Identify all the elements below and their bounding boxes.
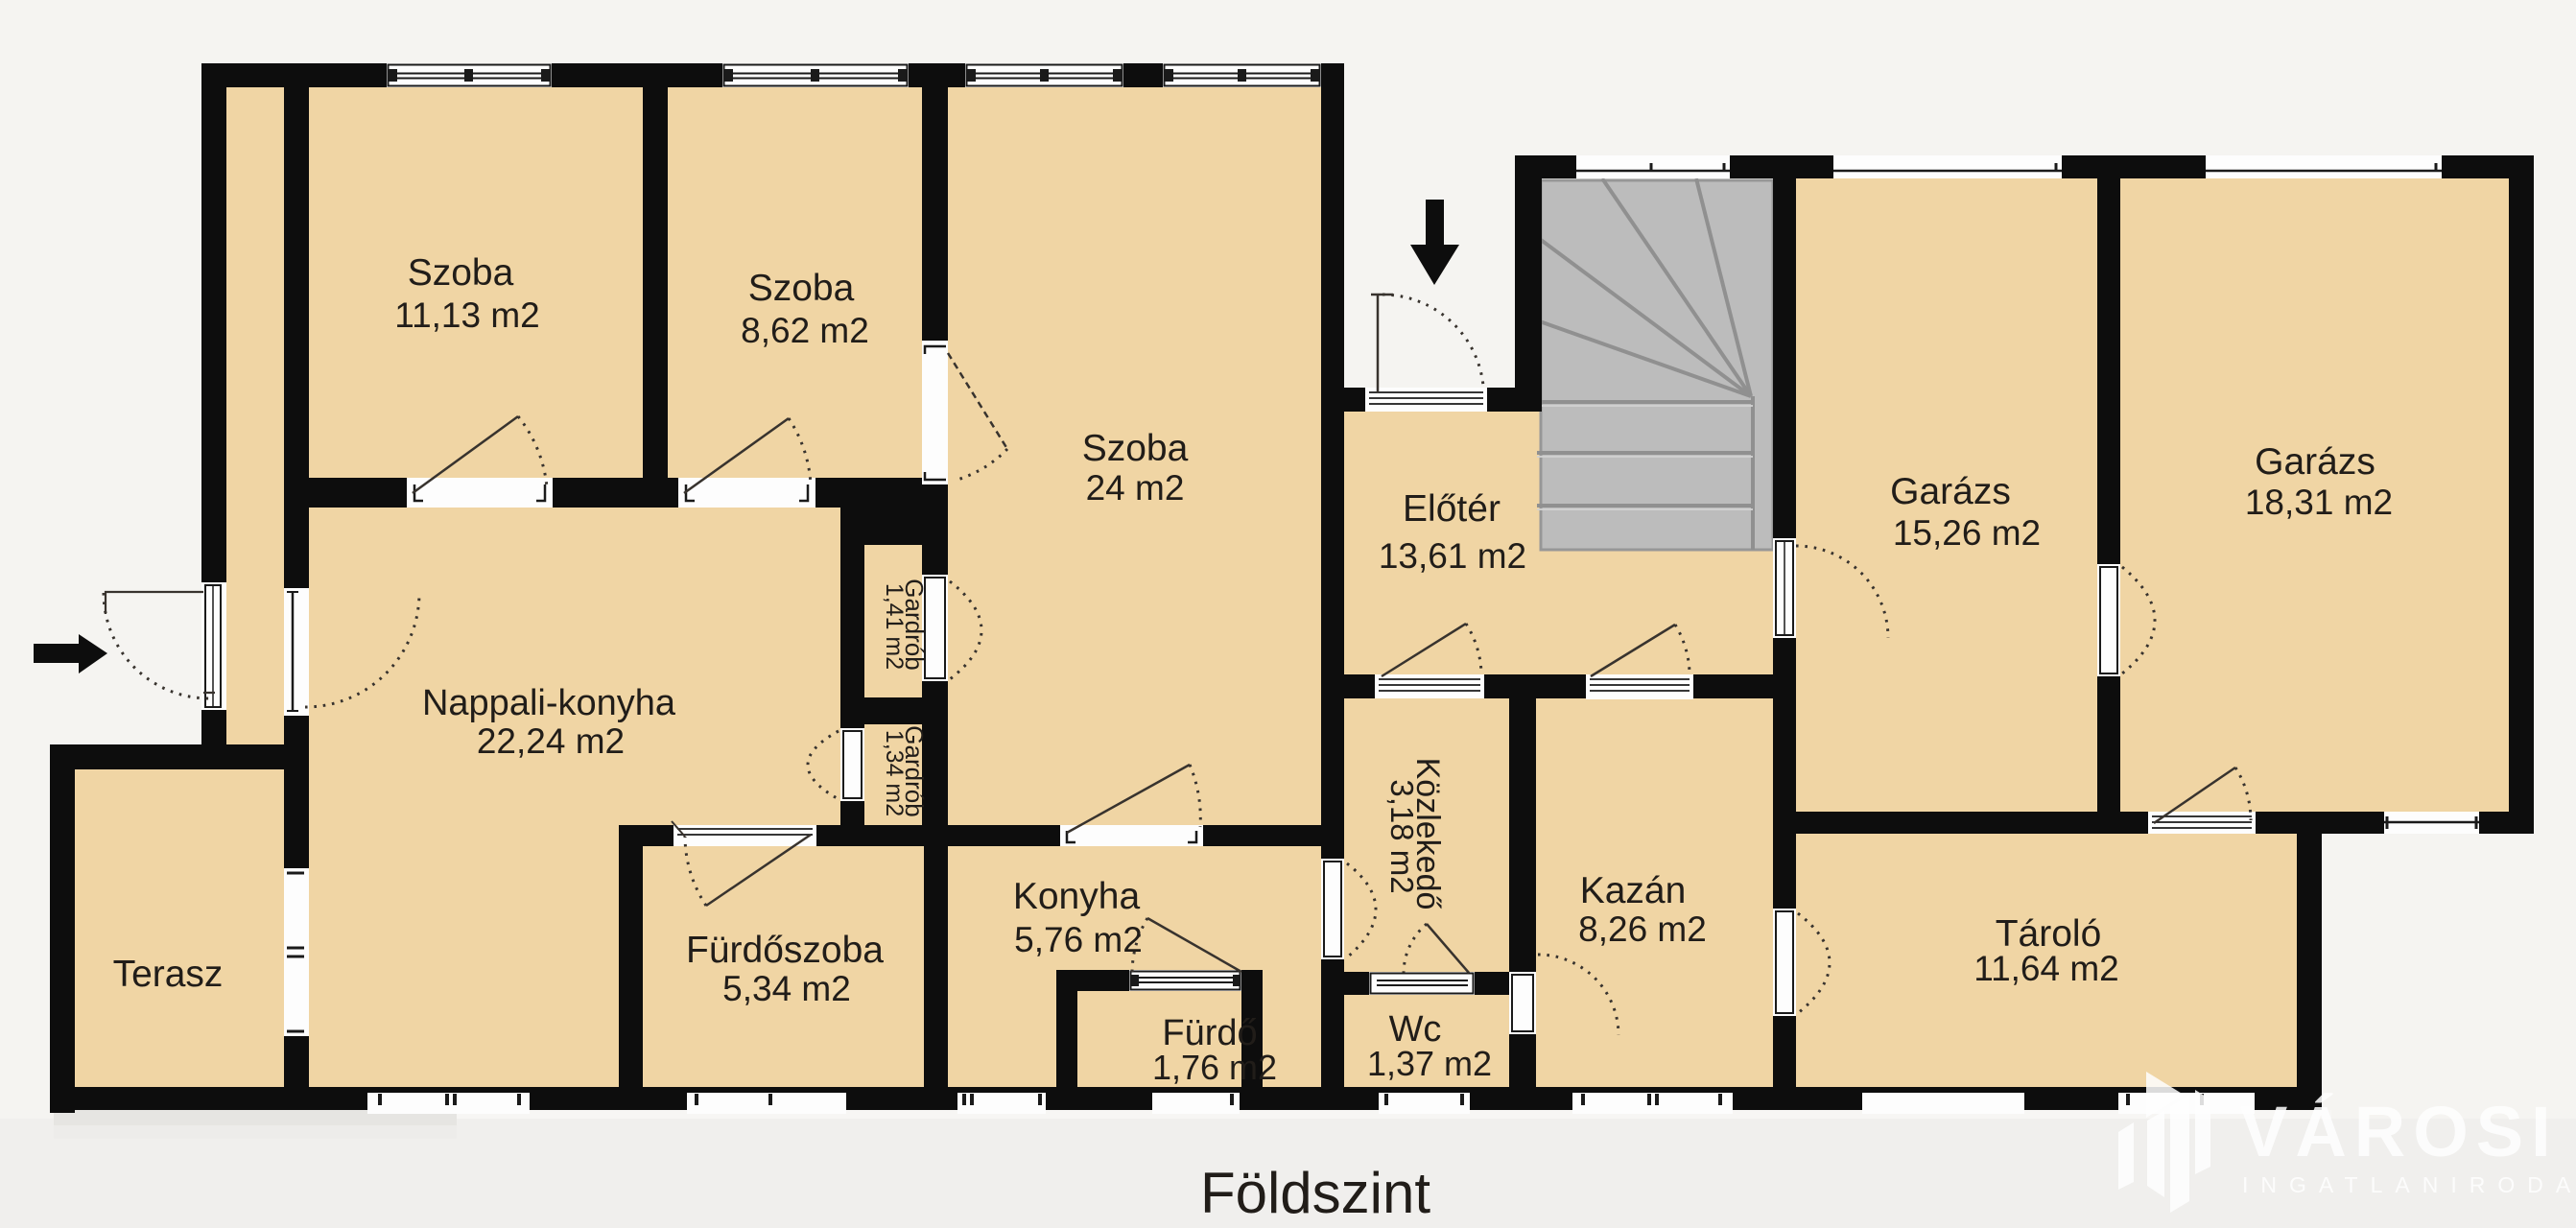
- svg-text:Szoba: Szoba: [748, 268, 855, 309]
- svg-text:VÁROSI: VÁROSI: [2240, 1092, 2559, 1171]
- svg-text:Kazán: Kazán: [1580, 870, 1687, 911]
- svg-text:Földszint: Földszint: [1200, 1161, 1430, 1225]
- svg-text:Szoba: Szoba: [1082, 428, 1189, 469]
- svg-text:Garázs: Garázs: [1890, 471, 2011, 512]
- svg-text:18,31 m2: 18,31 m2: [2245, 483, 2393, 522]
- svg-text:Nappali-konyha: Nappali-konyha: [422, 683, 676, 723]
- svg-text:1,34 m2: 1,34 m2: [881, 730, 908, 816]
- svg-text:INGATLANIRODA: INGATLANIRODA: [2242, 1172, 2576, 1197]
- svg-text:11,13 m2: 11,13 m2: [394, 295, 540, 335]
- svg-text:22,24 m2: 22,24 m2: [477, 721, 625, 761]
- svg-text:8,26 m2: 8,26 m2: [1578, 909, 1707, 949]
- svg-text:5,76 m2: 5,76 m2: [1014, 920, 1143, 959]
- svg-text:3,18 m2: 3,18 m2: [1384, 779, 1420, 893]
- svg-text:8,62 m2: 8,62 m2: [741, 311, 869, 350]
- svg-text:Terasz: Terasz: [113, 954, 224, 995]
- svg-text:13,61 m2: 13,61 m2: [1379, 536, 1526, 576]
- svg-text:15,26 m2: 15,26 m2: [1893, 513, 2041, 553]
- svg-text:Szoba: Szoba: [408, 252, 514, 294]
- svg-text:11,64 m2: 11,64 m2: [1973, 949, 2119, 988]
- svg-text:Előtér: Előtér: [1403, 488, 1501, 530]
- svg-text:1,41 m2: 1,41 m2: [881, 583, 908, 670]
- svg-text:5,34 m2: 5,34 m2: [722, 969, 851, 1008]
- svg-text:24 m2: 24 m2: [1086, 468, 1185, 508]
- svg-text:Garázs: Garázs: [2255, 441, 2375, 483]
- svg-text:1,76 m2: 1,76 m2: [1152, 1048, 1277, 1087]
- svg-text:1,37 m2: 1,37 m2: [1367, 1044, 1492, 1083]
- svg-text:Konyha: Konyha: [1013, 876, 1141, 917]
- svg-text:Fürdőszoba: Fürdőszoba: [686, 930, 884, 971]
